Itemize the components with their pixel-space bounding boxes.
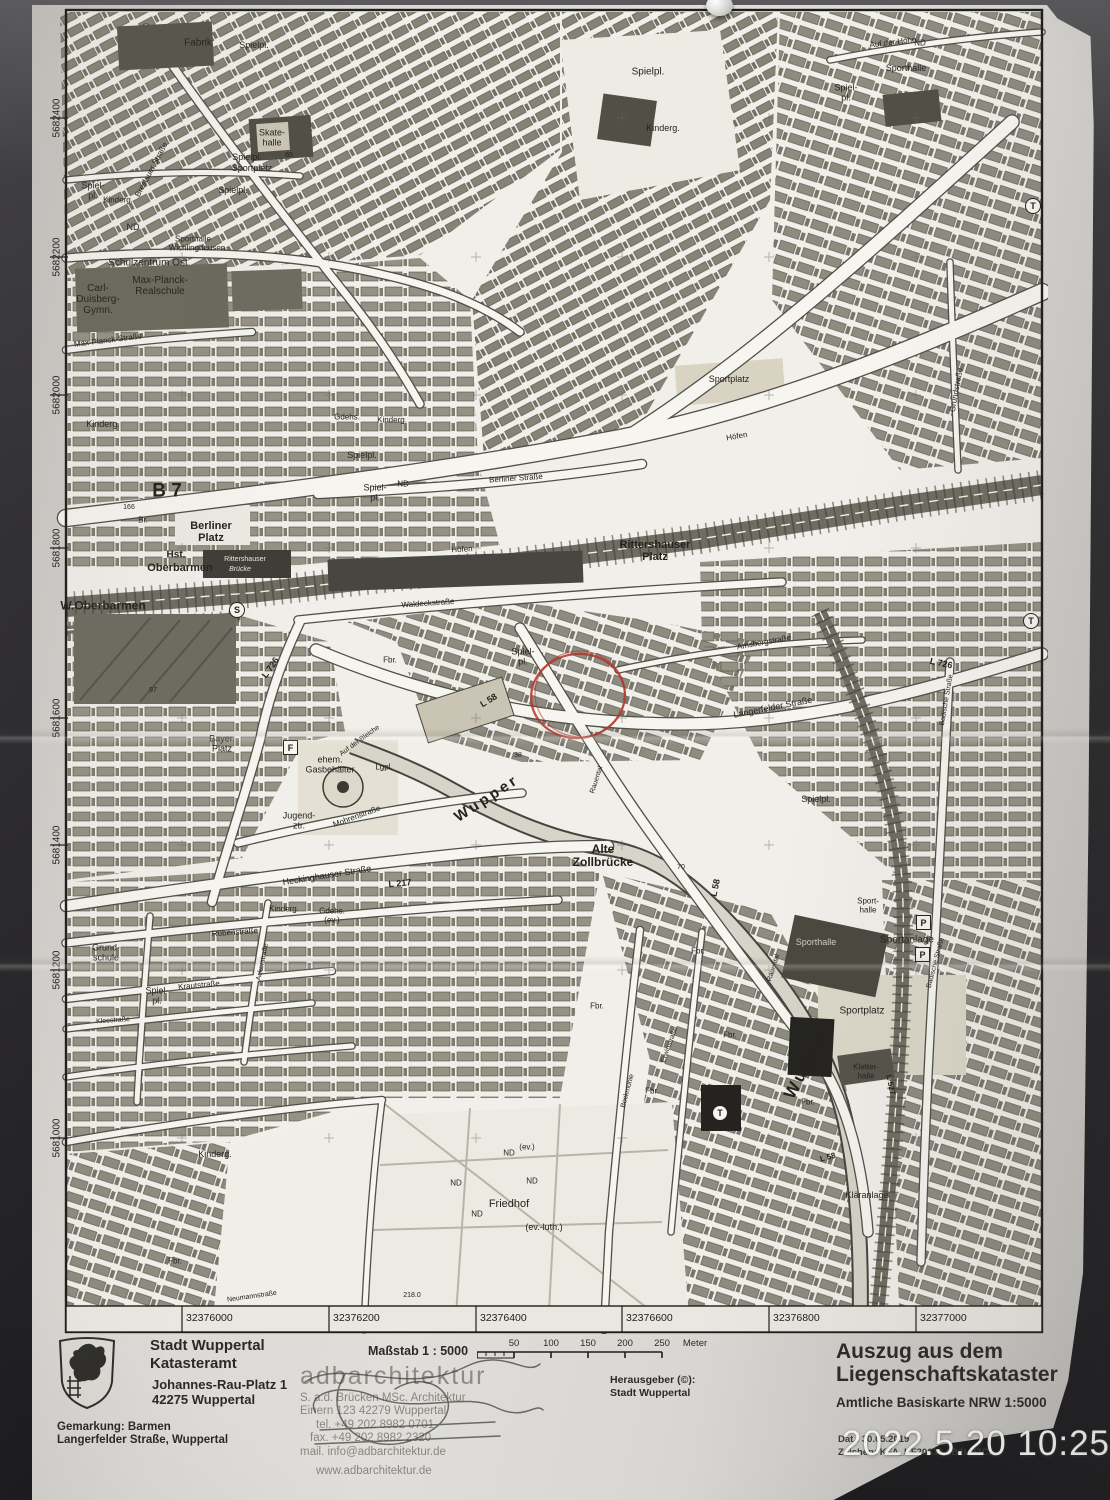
camera-timestamp: 2022.5.20 10:25 xyxy=(842,1424,1110,1464)
issuer-address1: Johannes-Rau-Platz 1 xyxy=(152,1377,287,1392)
scale-label: Maßstab 1 : 5000 xyxy=(368,1344,468,1358)
map-label: ND xyxy=(471,1211,483,1220)
map-label: Spielpl. xyxy=(347,451,377,461)
map-label: Kläranlage xyxy=(845,1191,888,1201)
grid-label-easting: 32376200 xyxy=(333,1312,380,1324)
map-label: Carl- Duisberg- Gymn. xyxy=(76,284,119,316)
map-label: 166 xyxy=(123,504,135,512)
grid-label-easting: 32376600 xyxy=(626,1312,673,1324)
architect-line2: Einern 123 42279 Wuppertal xyxy=(300,1405,530,1419)
wuppertal-coat-of-arms xyxy=(54,1334,122,1414)
building xyxy=(882,89,941,127)
grid-label-easting: 32377000 xyxy=(920,1312,967,1324)
map-label: Spielpl. xyxy=(801,795,831,805)
scale-bar: 50100150200250Meter xyxy=(477,1338,717,1362)
publisher-name: Stadt Wuppertal xyxy=(610,1387,690,1399)
map-label: Sportplatz xyxy=(839,1007,884,1018)
map-label: ND xyxy=(526,1178,538,1187)
transformer-symbol: T xyxy=(1023,613,1039,629)
architect-stamp: adbarchitektur S. a.d. Brücken MSc. Arch… xyxy=(300,1362,530,1479)
map-label: Grund- schule xyxy=(92,943,120,962)
map-label: Gdehs. xyxy=(334,414,360,423)
map-label: Spiel- pl. xyxy=(145,986,168,1005)
map-label: Spielpl. xyxy=(632,68,665,79)
map-label: Brücke xyxy=(229,566,251,574)
parking-symbol: P xyxy=(915,947,930,962)
map-label: Kinderg. xyxy=(377,417,407,426)
grid-label-easting: 32376800 xyxy=(773,1312,820,1324)
transformer-symbol: T xyxy=(1025,198,1041,214)
map-label: Schulzentrum Ost xyxy=(108,259,187,270)
map-label: Spielpl. xyxy=(239,41,269,51)
map-label: Kinderg. xyxy=(198,1150,232,1160)
architect-line1: S. a.d. Brücken MSc. Architektur xyxy=(300,1392,530,1406)
map-label: Spiel- pl. xyxy=(511,647,534,666)
architect-web: www.adbarchitektur.de xyxy=(300,1465,530,1479)
map-label: Fbr. xyxy=(590,1003,604,1012)
map-label: Spielpl. xyxy=(232,153,262,163)
map-label: Kinderg. xyxy=(86,420,120,430)
map-label: Sport- halle xyxy=(857,897,879,914)
map-label: Sportanlage xyxy=(880,936,934,947)
map-label: Fbr. xyxy=(723,1032,737,1041)
issuer-title2: Katasteramt xyxy=(150,1355,237,1372)
issuer-address2: 42275 Wuppertal xyxy=(152,1392,255,1407)
scale-unit-label: Meter xyxy=(683,1338,707,1349)
grid-label-northing: 5681800 xyxy=(52,529,63,568)
sbahn-station-symbol: S xyxy=(229,602,245,618)
map-label: ND xyxy=(450,1180,462,1189)
map-label: Fbr. xyxy=(645,1088,659,1097)
map-label: (ev.) xyxy=(519,1144,534,1153)
location-line: Langerfelder Straße, Wuppertal xyxy=(57,1434,228,1446)
architect-line4: fax. +49 202 8982 2320 xyxy=(300,1432,530,1446)
map-label: Bayer. Platz xyxy=(209,734,235,753)
map-label: Oberbarmen xyxy=(147,563,212,575)
architect-name: adbarchitektur xyxy=(300,1362,530,1392)
gas-holder-center xyxy=(337,781,349,793)
map-label: Fbr. xyxy=(168,1258,182,1267)
map-label: Fbr. xyxy=(383,657,397,666)
map-label: Fabrik xyxy=(184,39,212,50)
map-label: Lgpl. xyxy=(375,764,392,773)
extract-subtitle: Amtliche Basiskarte NRW 1:5000 xyxy=(836,1395,1047,1410)
map-canvas: FabrikSpielpl.Breslauer StraßeSkate- hal… xyxy=(0,0,1110,1500)
map-label: Br. xyxy=(138,517,148,526)
map-label: Sporthalle xyxy=(886,64,927,74)
grid-label-northing: 5682200 xyxy=(52,238,63,277)
scale-tick-label: 50 xyxy=(509,1338,520,1349)
map-label: Friedhof xyxy=(489,1199,529,1211)
realschule-building xyxy=(231,269,302,311)
transformer-symbol: T xyxy=(712,1105,728,1121)
map-label: Jugend- ztr. xyxy=(283,811,316,830)
map-label: Höfen xyxy=(451,545,473,555)
map-label: Kinderg. xyxy=(646,124,680,134)
map-label: Rittershauser xyxy=(224,556,266,564)
scale-tick-label: 150 xyxy=(580,1338,596,1349)
map-label: Sportplatz xyxy=(232,164,273,174)
scale-tick-label: 100 xyxy=(543,1338,559,1349)
grid-label-easting: 32376000 xyxy=(186,1312,233,1324)
photo-background: FabrikSpielpl.Breslauer StraßeSkate- hal… xyxy=(0,0,1110,1500)
building xyxy=(597,93,657,146)
map-label: Spielpl. xyxy=(218,186,248,196)
issuer-title: Stadt Wuppertal xyxy=(150,1337,265,1354)
map-label: Hst. xyxy=(167,551,186,562)
map-label: 70 xyxy=(677,864,685,872)
parking-symbol: P xyxy=(916,915,931,930)
map-label: B 7 xyxy=(152,482,182,503)
map-label: Rittershauser Platz xyxy=(620,540,691,564)
station-building xyxy=(203,550,291,578)
publisher-label: Herausgeber (©): xyxy=(610,1374,695,1386)
map-label: ehem. Gasbehälter xyxy=(305,755,354,774)
map-label: Max-Planck- Realschule xyxy=(132,276,188,298)
map-label: Kinderg. xyxy=(269,906,299,915)
architect-line3: tel. +49 202 8982 0701 xyxy=(300,1419,530,1433)
map-label: Sportplatz xyxy=(709,375,750,385)
scale-tick-label: 200 xyxy=(617,1338,633,1349)
map-label: 65 xyxy=(285,152,293,160)
map-label: 218.0 xyxy=(403,1292,421,1300)
extract-title2: Liegenschaftskataster xyxy=(836,1363,1058,1387)
map-label: ND xyxy=(397,481,409,490)
map-label: Spiel- pl. xyxy=(363,483,386,502)
map-label: Spiel- pl. xyxy=(834,83,857,102)
map-label: Skate- halle xyxy=(259,128,285,147)
grid-label-easting: 32376400 xyxy=(480,1312,527,1324)
grid-label-northing: 5682400 xyxy=(52,99,63,138)
map-label: Wichlinghausen xyxy=(169,245,225,254)
map-label: Fbr. xyxy=(691,948,705,957)
grid-label-northing: 5681400 xyxy=(52,826,63,865)
map-drawing xyxy=(48,8,1048,1334)
map-label: Alte Zollbrücke xyxy=(573,843,634,869)
grid-label-northing: 5682000 xyxy=(52,376,63,415)
grid-label-northing: 5681600 xyxy=(52,699,63,738)
map-label: 38 xyxy=(514,752,522,760)
architect-line5: mail. info@adbarchitektur.de xyxy=(300,1446,530,1460)
map-label: ND xyxy=(503,1150,515,1159)
extract-title1: Auszug aus dem xyxy=(836,1340,1003,1364)
map-label: Sporthalle xyxy=(796,938,837,948)
f-symbol: F xyxy=(283,740,298,755)
map-label: Fbr. xyxy=(801,1099,815,1108)
grid-label-northing: 5681000 xyxy=(52,1119,63,1158)
map-label: ND xyxy=(914,40,926,49)
map-label: Spiel- pl. xyxy=(81,181,104,200)
map-label: Gdehs. (ev.) xyxy=(319,907,345,924)
map-label: Kinderg. xyxy=(103,197,133,206)
map-label: (ev.-luth.) xyxy=(525,1223,562,1233)
map-label: L 217 xyxy=(388,878,412,890)
map-label: Berliner Platz xyxy=(190,521,232,545)
gemarkung-line: Gemarkung: Barmen xyxy=(57,1421,171,1433)
map-label: Kletter- halle xyxy=(853,1063,879,1080)
scale-tick-label: 250 xyxy=(654,1338,670,1349)
map-label: 97 xyxy=(149,687,157,695)
grid-label-northing: 5681200 xyxy=(52,951,63,990)
map-label: ND xyxy=(127,223,140,233)
map-label: W.Oberbarmen xyxy=(60,600,145,613)
